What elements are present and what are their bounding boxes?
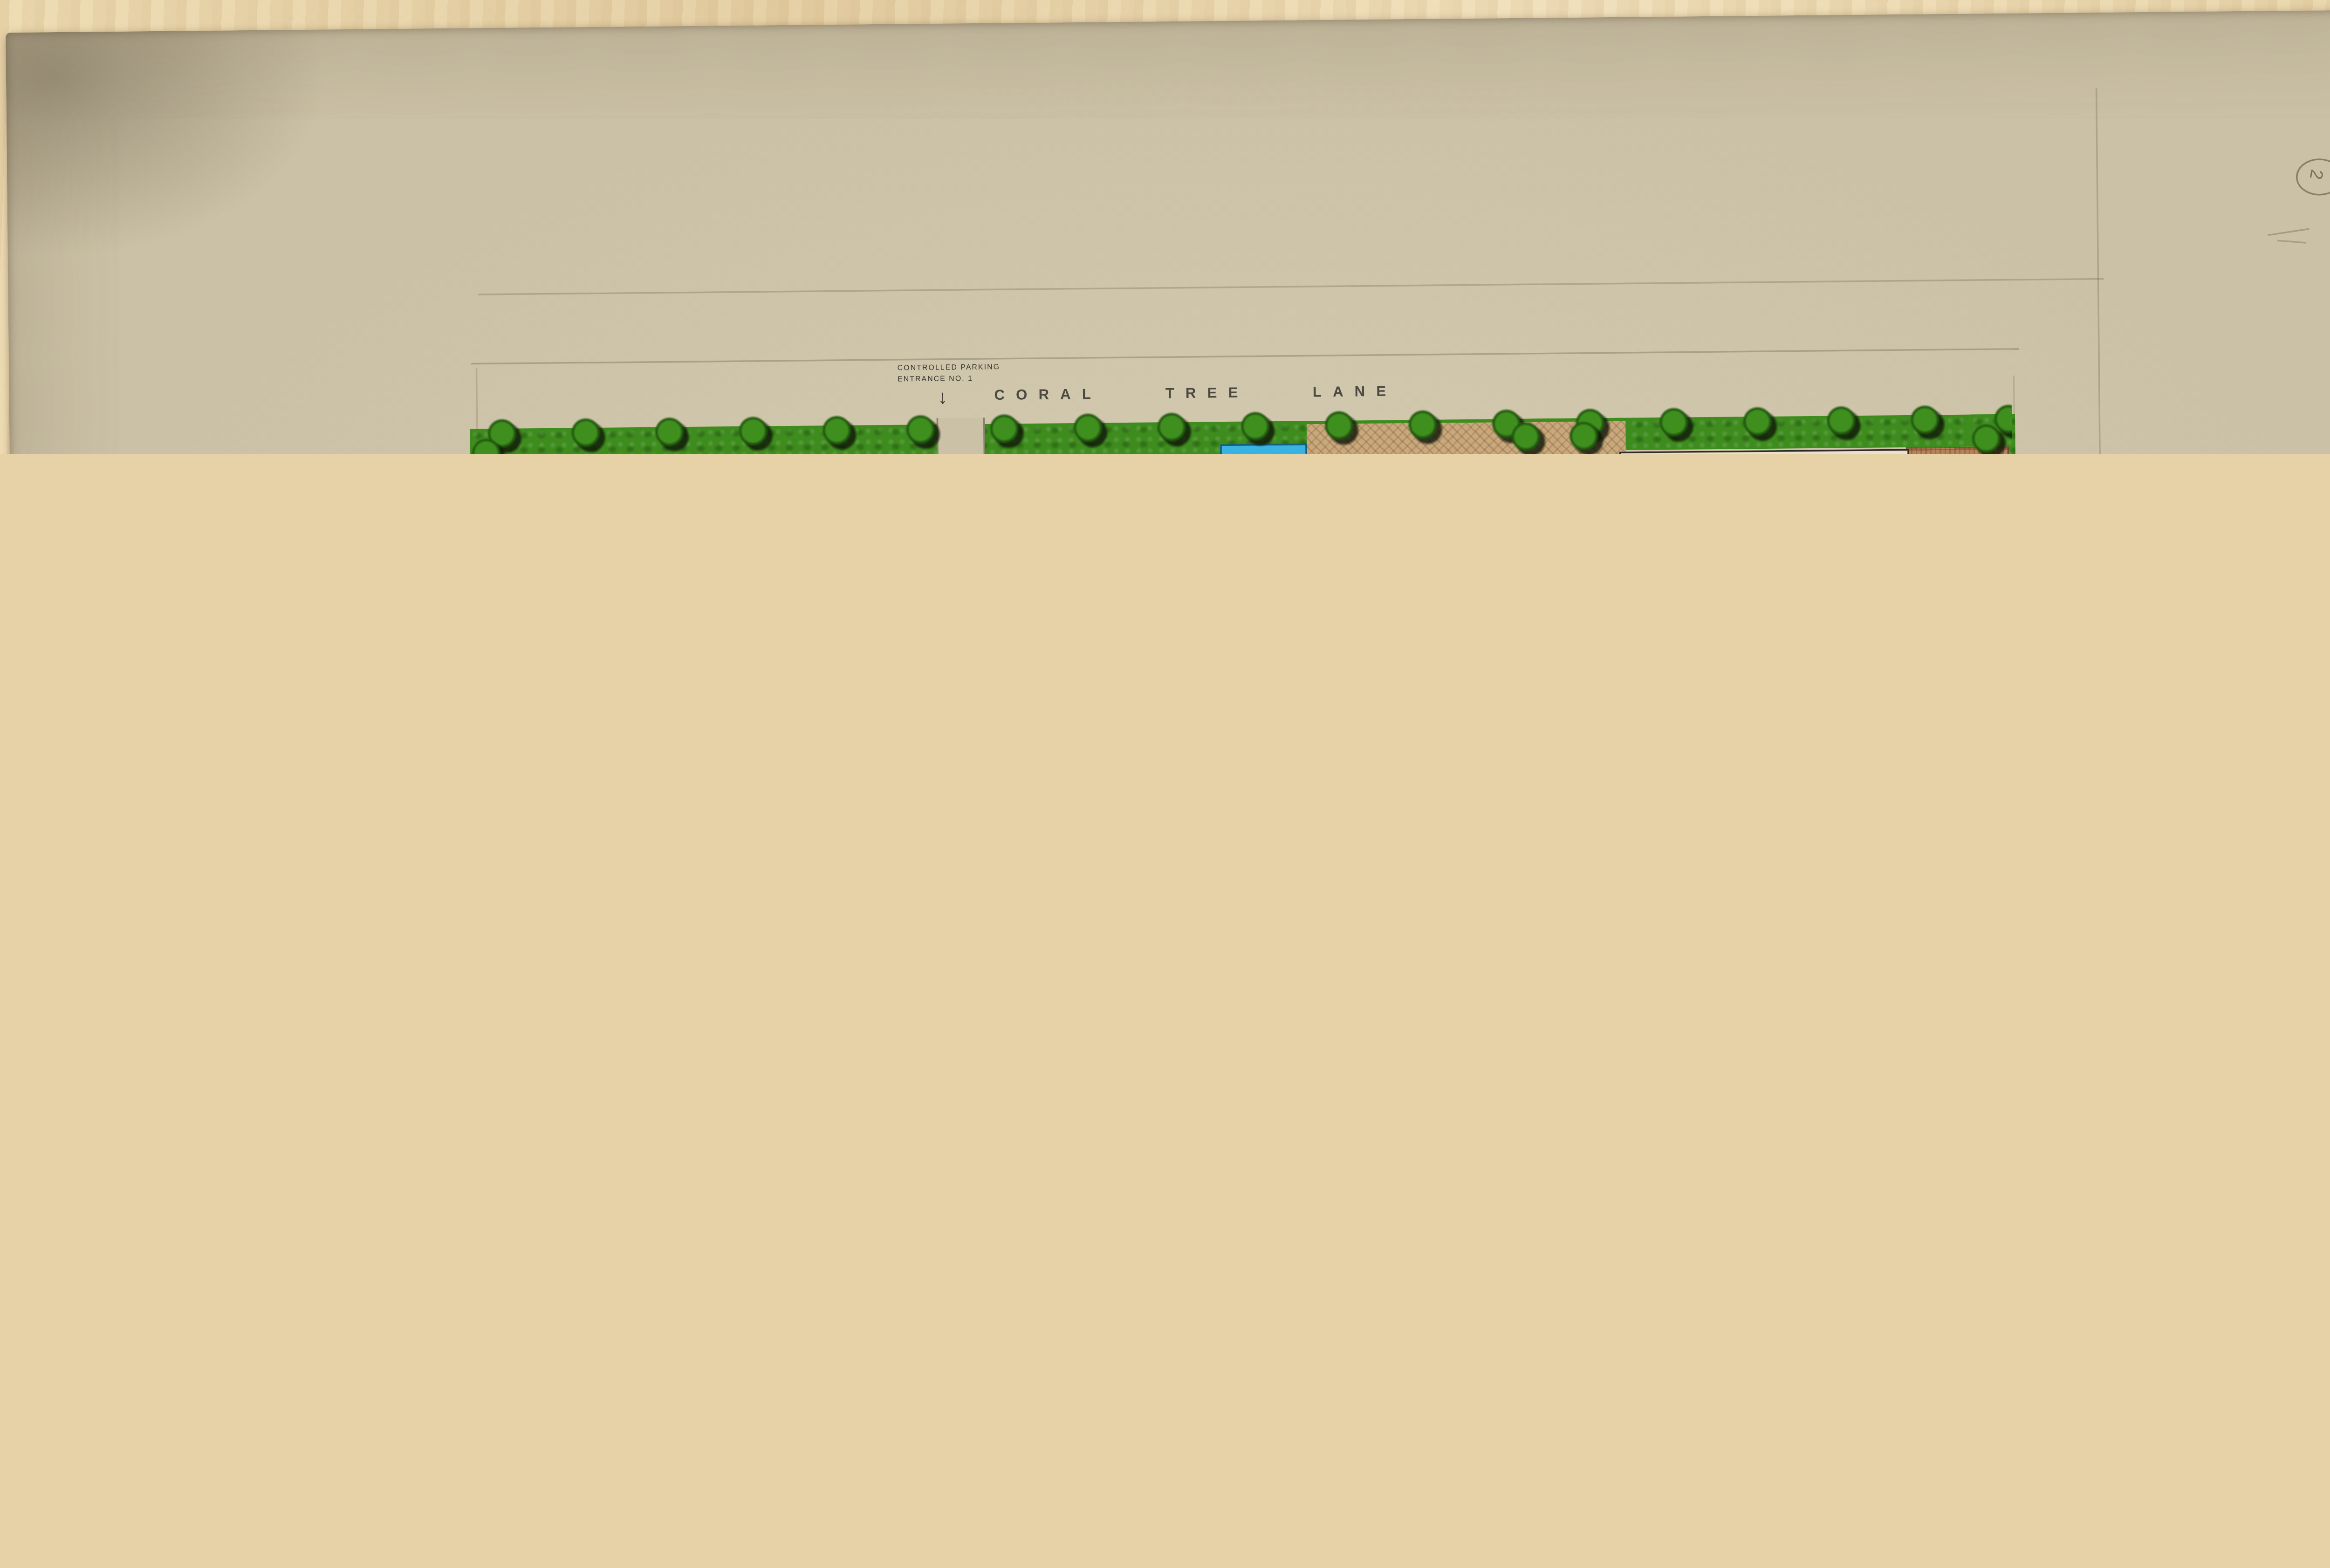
plot-plan-drawing: ELECTRONICS BLDG. A BLD. B HEADQUARTERS … [0, 0, 2330, 454]
street-line-east-outer [2096, 88, 2110, 454]
sheet-number-circle: 2 [2296, 158, 2330, 196]
tree-row-east-upper [1967, 420, 2025, 454]
street-line-north-inner [471, 348, 2019, 364]
tree-grove-plaza [1507, 418, 1624, 454]
pencil-scribble-1 [2268, 228, 2309, 236]
sheet-number: 2 [2307, 168, 2327, 181]
note-entrance-no1: CONTROLLED PARKING ENTRANCE NO. 1 [898, 363, 1001, 386]
pencil-scribble-2 [2277, 240, 2306, 243]
entrance-no1-arrow-icon: ↓ [938, 383, 948, 411]
tree-row-north [483, 401, 2012, 454]
street-label-coral-tree-lane: CORAL TREE LANE [994, 383, 1397, 403]
street-line-north-outer [478, 278, 2104, 295]
paper-sheet: ELECTRONICS BLDG. A BLD. B HEADQUARTERS … [6, 9, 2330, 454]
desk-surface: ELECTRONICS BLDG. A BLD. B HEADQUARTERS … [0, 0, 2330, 454]
tree-row-west [466, 435, 522, 454]
